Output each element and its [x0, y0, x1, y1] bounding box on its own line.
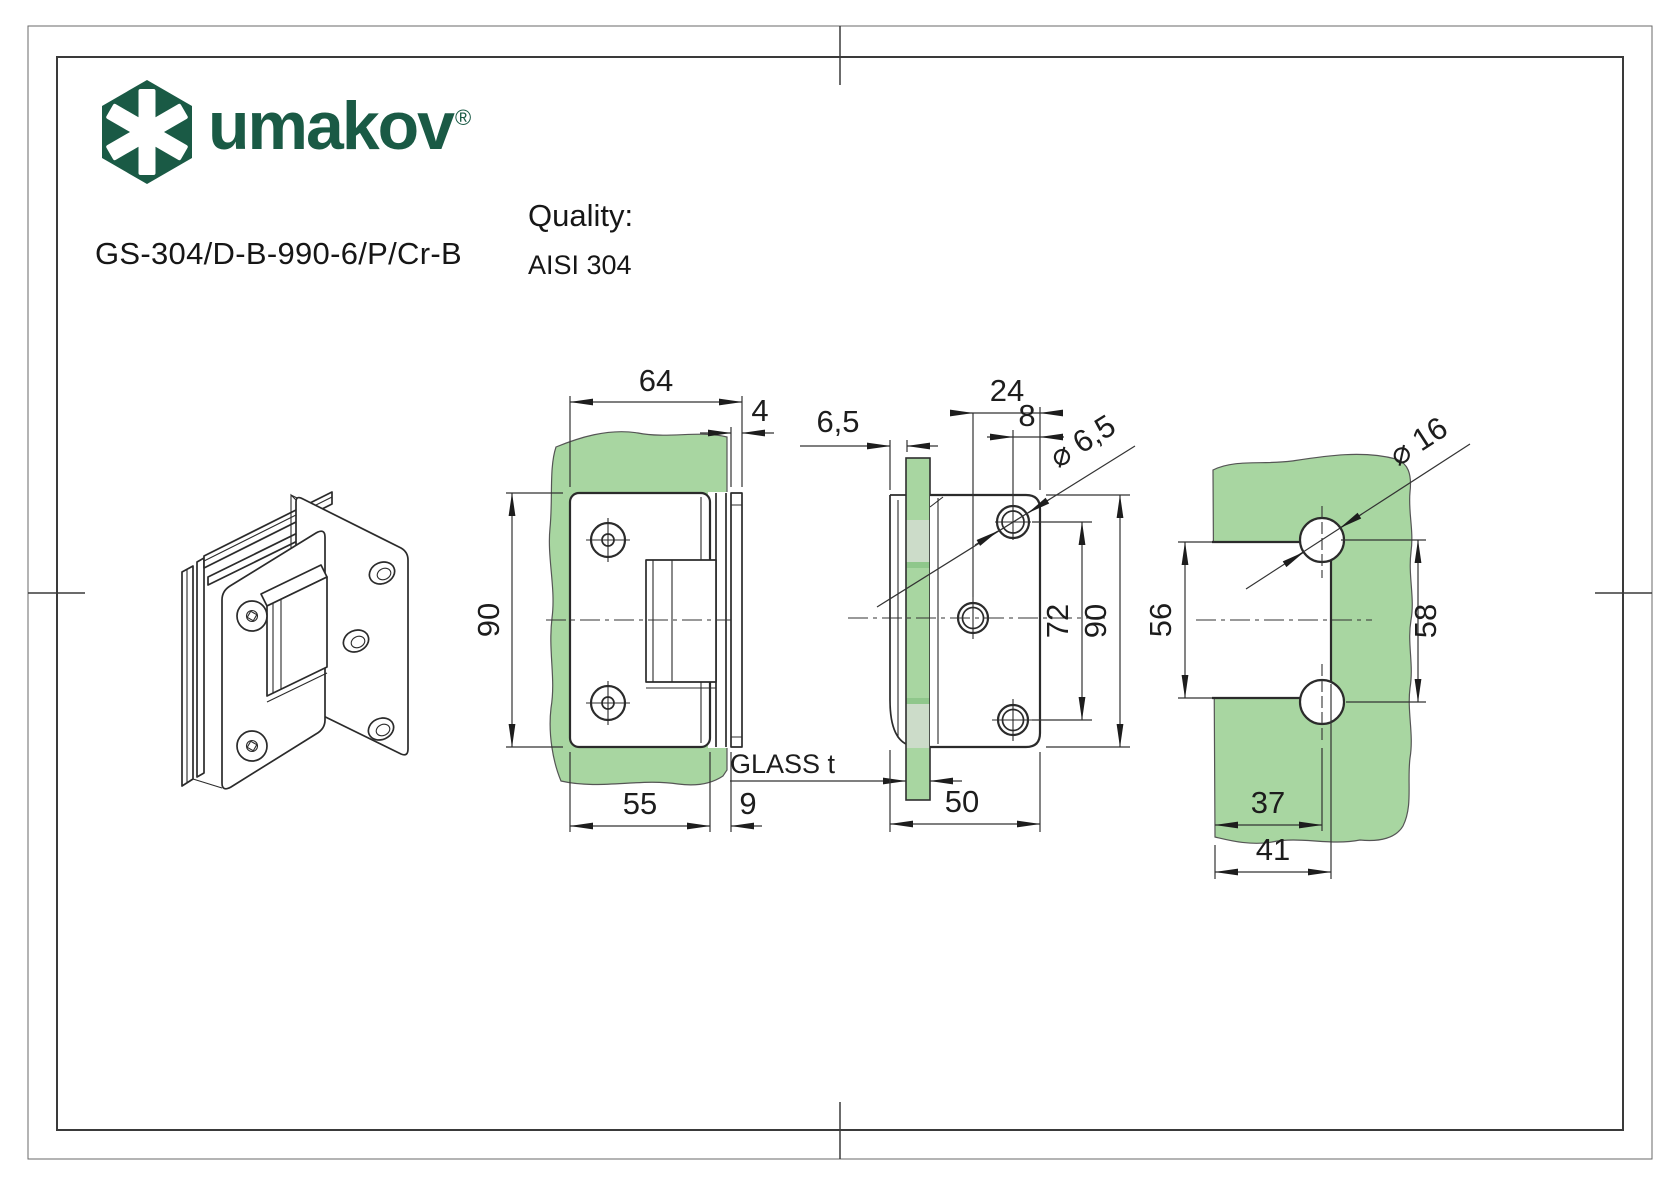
dim-lip: 6,5: [816, 404, 859, 439]
dim-cutout-height: 56: [1143, 603, 1178, 637]
dim-hole-center-x: 37: [1251, 785, 1285, 820]
drawing-sheet: umakov® GS-304/D-B-990-6/P/Cr-B Quality:…: [0, 0, 1680, 1187]
glass-edge-strip: [906, 458, 930, 800]
dim-cutout-depth: 41: [1256, 832, 1290, 867]
side-view: 6,5 24 8 ⌀ 6,5 72 90 GLASS t: [730, 373, 1135, 832]
isometric-view: [182, 492, 408, 789]
dim-hole-dia: ⌀ 6,5: [1043, 408, 1121, 475]
dim-side-height: 90: [1078, 604, 1113, 638]
front-view: 64 4 90 55 9: [471, 363, 774, 832]
technical-drawing: 64 4 90 55 9: [0, 0, 1680, 1187]
dim-front-width: 64: [639, 363, 673, 398]
dim-hole-x2: 8: [1018, 398, 1035, 433]
dim-depth: 50: [945, 784, 979, 819]
hinge-knuckle: [646, 560, 716, 682]
wall-plate-edge: [731, 493, 742, 747]
glass-thickness-label: GLASS t: [730, 749, 836, 779]
dim-offset: 9: [739, 786, 756, 821]
dim-hole-span: 58: [1408, 604, 1443, 638]
glass-cutout-view: 56 58 ⌀ 16 37 41: [1143, 410, 1470, 879]
dim-plate-width: 55: [623, 786, 657, 821]
dim-wall-plate-thickness: 4: [751, 393, 768, 428]
dim-front-height: 90: [471, 603, 506, 637]
dim-hole-span: 72: [1040, 604, 1075, 638]
